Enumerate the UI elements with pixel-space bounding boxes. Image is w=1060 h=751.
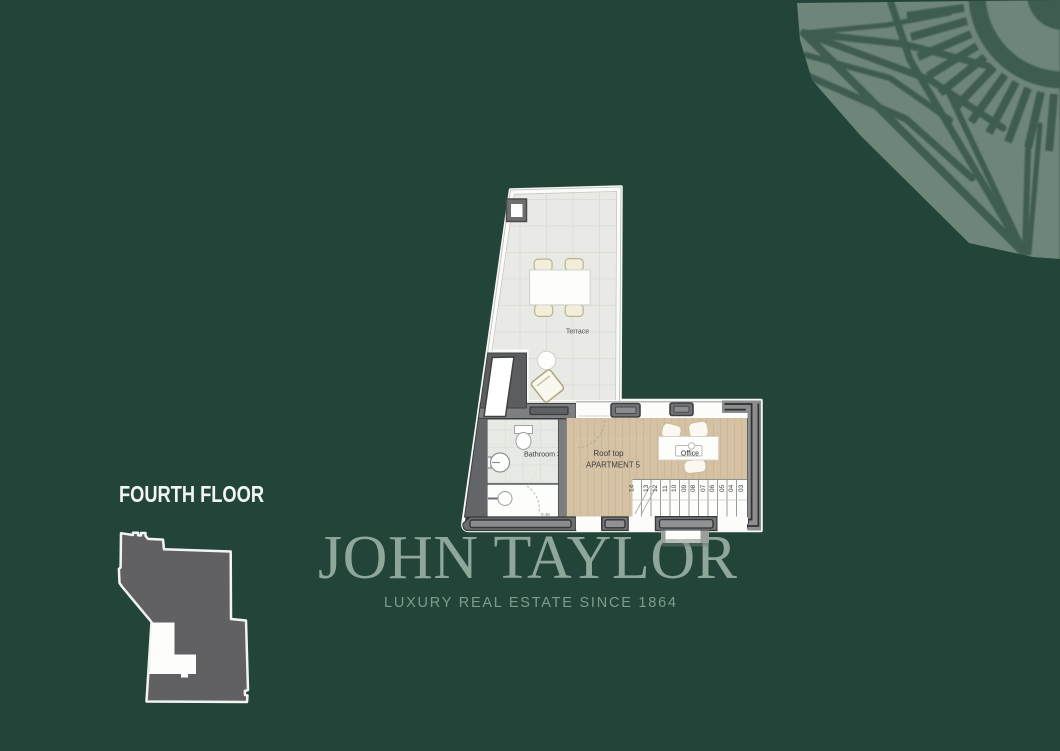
svg-text:11: 11 bbox=[662, 485, 669, 492]
svg-text:07: 07 bbox=[700, 484, 707, 492]
svg-text:08: 08 bbox=[690, 484, 697, 492]
svg-text:12: 12 bbox=[652, 484, 659, 492]
svg-text:Terrace: Terrace bbox=[566, 329, 589, 336]
svg-text:FOURTH FLOOR: FOURTH FLOOR bbox=[119, 481, 264, 507]
svg-text:Office: Office bbox=[681, 451, 699, 458]
svg-text:Roof top: Roof top bbox=[593, 449, 624, 458]
svg-text:09: 09 bbox=[681, 484, 688, 492]
svg-text:03: 03 bbox=[738, 484, 745, 492]
svg-text:13: 13 bbox=[643, 484, 650, 492]
svg-text:06: 06 bbox=[709, 484, 716, 492]
svg-text:04: 04 bbox=[728, 484, 735, 492]
svg-text:APARTMENT 5: APARTMENT 5 bbox=[586, 461, 641, 470]
svg-text:05: 05 bbox=[719, 484, 726, 492]
svg-text:14: 14 bbox=[629, 484, 636, 492]
svg-text:0.48: 0.48 bbox=[541, 512, 550, 517]
svg-text:Bathroom 3: Bathroom 3 bbox=[524, 450, 561, 459]
svg-text:10: 10 bbox=[671, 484, 678, 492]
